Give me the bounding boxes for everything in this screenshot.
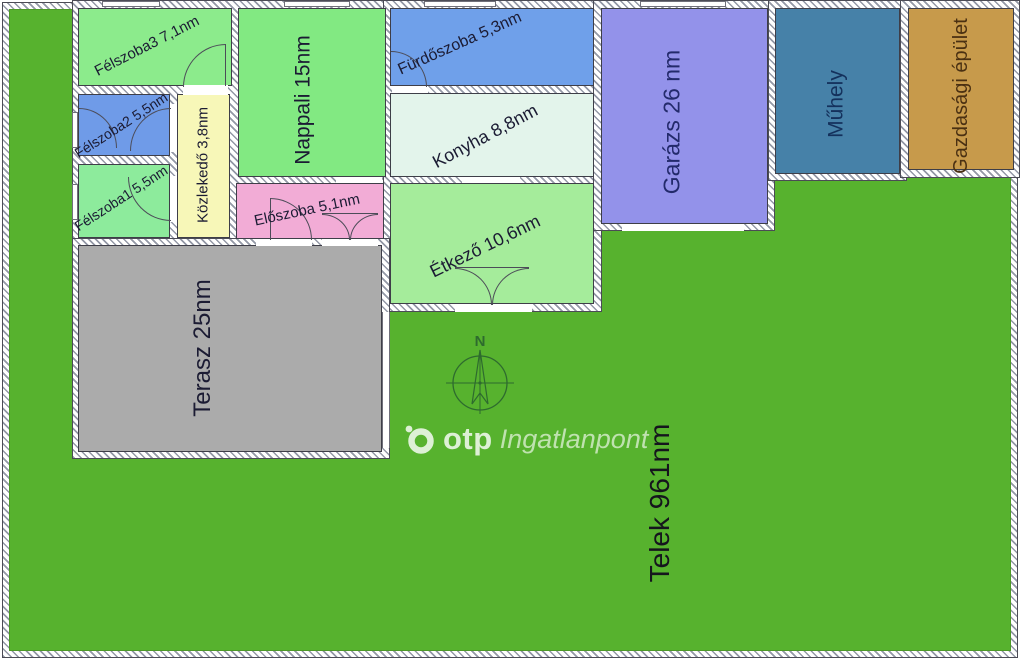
door-gap-nappali xyxy=(336,177,382,183)
door-gap-felszoba2 xyxy=(170,104,177,152)
room-label-kozlekedo: Közlekedő 3,8nm xyxy=(196,107,211,223)
room-label-terasz: Terasz 25nm xyxy=(191,279,215,416)
terrace-open-edge xyxy=(382,312,390,448)
otp-logo-suffix: Ingatlanpont xyxy=(500,424,649,455)
door-gap-eloszoba-1 xyxy=(256,239,312,246)
room-label-gazdasagi: Gazdasági épület xyxy=(951,18,971,174)
door-leaf-felszoba3 xyxy=(225,44,226,86)
compass: N xyxy=(442,332,518,416)
window-garazs xyxy=(640,1,726,7)
window-felszoba1 xyxy=(72,184,78,220)
window-felszoba3 xyxy=(102,1,160,7)
watermark: otp Ingatlanpont xyxy=(404,421,648,457)
room-garazs xyxy=(601,8,768,224)
room-label-nappali: Nappali 15nm xyxy=(293,35,314,165)
door-gap-etkezo xyxy=(455,304,532,312)
compass-north-label: N xyxy=(475,333,486,350)
window-nappali xyxy=(284,1,350,7)
door-gap-konyha-etkezo xyxy=(462,177,520,183)
lot-label: Telek 961nm xyxy=(646,424,674,583)
garage-door-gap xyxy=(622,224,744,231)
room-label-muhely: Műhely xyxy=(826,70,847,138)
floor-plan: Félszoba3 7,1nm Félszoba2 5,5nm Félszoba… xyxy=(0,0,1024,661)
window-furdoszoba xyxy=(424,1,496,7)
door-gap-felszoba1 xyxy=(170,176,177,222)
door-gap-furdoszoba xyxy=(392,86,428,93)
otp-logo-text: otp xyxy=(443,421,493,457)
otp-logo-icon xyxy=(404,423,436,455)
room-label-garazs: Garázs 26 nm xyxy=(661,50,684,194)
room-terasz xyxy=(78,245,382,452)
door-frame-etkezo xyxy=(455,267,529,268)
door-gap-eloszoba-2 xyxy=(322,239,378,246)
